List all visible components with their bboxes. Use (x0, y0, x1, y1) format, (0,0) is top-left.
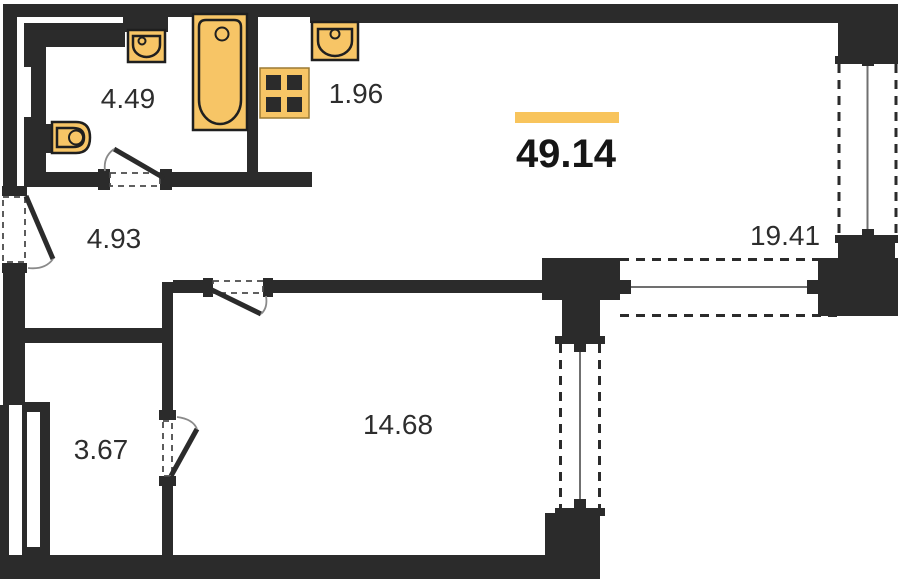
stove-icon (260, 68, 309, 118)
bathroom-door (105, 149, 164, 186)
total-area-bar (515, 112, 619, 123)
wall-storage-east-lower (162, 485, 173, 557)
floor-plan-svg: 49.14 4.49 1.96 4.93 3.67 14.68 19.41 (0, 0, 900, 579)
wall-bedroom-top-left (173, 280, 203, 293)
area-label-living-room: 19.41 (750, 220, 820, 251)
window-living-south (620, 260, 838, 316)
bathroom-sink-icon (128, 30, 165, 62)
storage-door-jamb-bottom (159, 476, 176, 486)
wall-pier-right-lower (818, 258, 898, 316)
area-label-bathroom: 4.49 (101, 83, 156, 114)
wall-niche-bathroom (24, 67, 31, 117)
total-area-label: 49.14 (516, 132, 617, 176)
area-label-bedroom: 14.68 (363, 409, 433, 440)
wall-central-pier-lower (562, 300, 600, 337)
wall-central-pier-upper (542, 258, 620, 300)
bathtub-icon (193, 14, 247, 130)
bedroom-door-jamb-right (263, 278, 273, 297)
storage-door (163, 417, 197, 476)
kitchen-sink-icon (312, 22, 358, 60)
storage-shaft-inner (27, 412, 40, 547)
wall-pier-right-upper (838, 242, 895, 260)
window-glass-cap (620, 280, 631, 294)
wall-top-right (310, 4, 840, 23)
wall-sink-backdrop (123, 8, 168, 32)
wall-storage-east-upper (162, 282, 173, 412)
window-sill-bedroom-top (555, 336, 605, 344)
entrance-door-jamb-top (2, 186, 27, 196)
window-glass-cap (862, 229, 874, 238)
wall-left-middle (3, 273, 25, 405)
entrance-door (3, 196, 53, 268)
wall-bathroom-bottom-right (170, 172, 312, 187)
wall-bathroom-bottom-left (25, 172, 100, 187)
wall-left-lower (0, 405, 9, 579)
window-glass-cap (807, 280, 818, 294)
wall-bottom (0, 555, 600, 579)
window-glass-cap (574, 499, 586, 508)
entrance-door-jamb-bottom (2, 263, 27, 273)
floor-plan: 49.14 4.49 1.96 4.93 3.67 14.68 19.41 (0, 0, 900, 579)
wall-pier-top-right (838, 4, 898, 57)
wall-hallway-storage (25, 328, 173, 343)
window-glass-cap (574, 343, 586, 352)
wall-bath-kitchen-divider (247, 16, 258, 187)
wall-bedroom-top-right (273, 280, 545, 293)
window-bedroom-east (561, 343, 600, 508)
area-label-storage: 3.67 (74, 434, 129, 465)
wall-bathroom-inner-top (45, 23, 125, 47)
storage-door-jamb-top (159, 410, 176, 420)
toilet-icon (42, 122, 90, 153)
window-glass-cap (862, 57, 874, 66)
wall-left-upper (3, 4, 17, 188)
bathroom-door-jamb-left (98, 169, 110, 190)
window-right (839, 57, 896, 238)
area-label-hallway: 4.93 (87, 223, 142, 254)
area-label-kitchen-niche: 1.96 (329, 78, 384, 109)
bedroom-door (212, 281, 266, 314)
bedroom-door-jamb-left (203, 278, 213, 297)
